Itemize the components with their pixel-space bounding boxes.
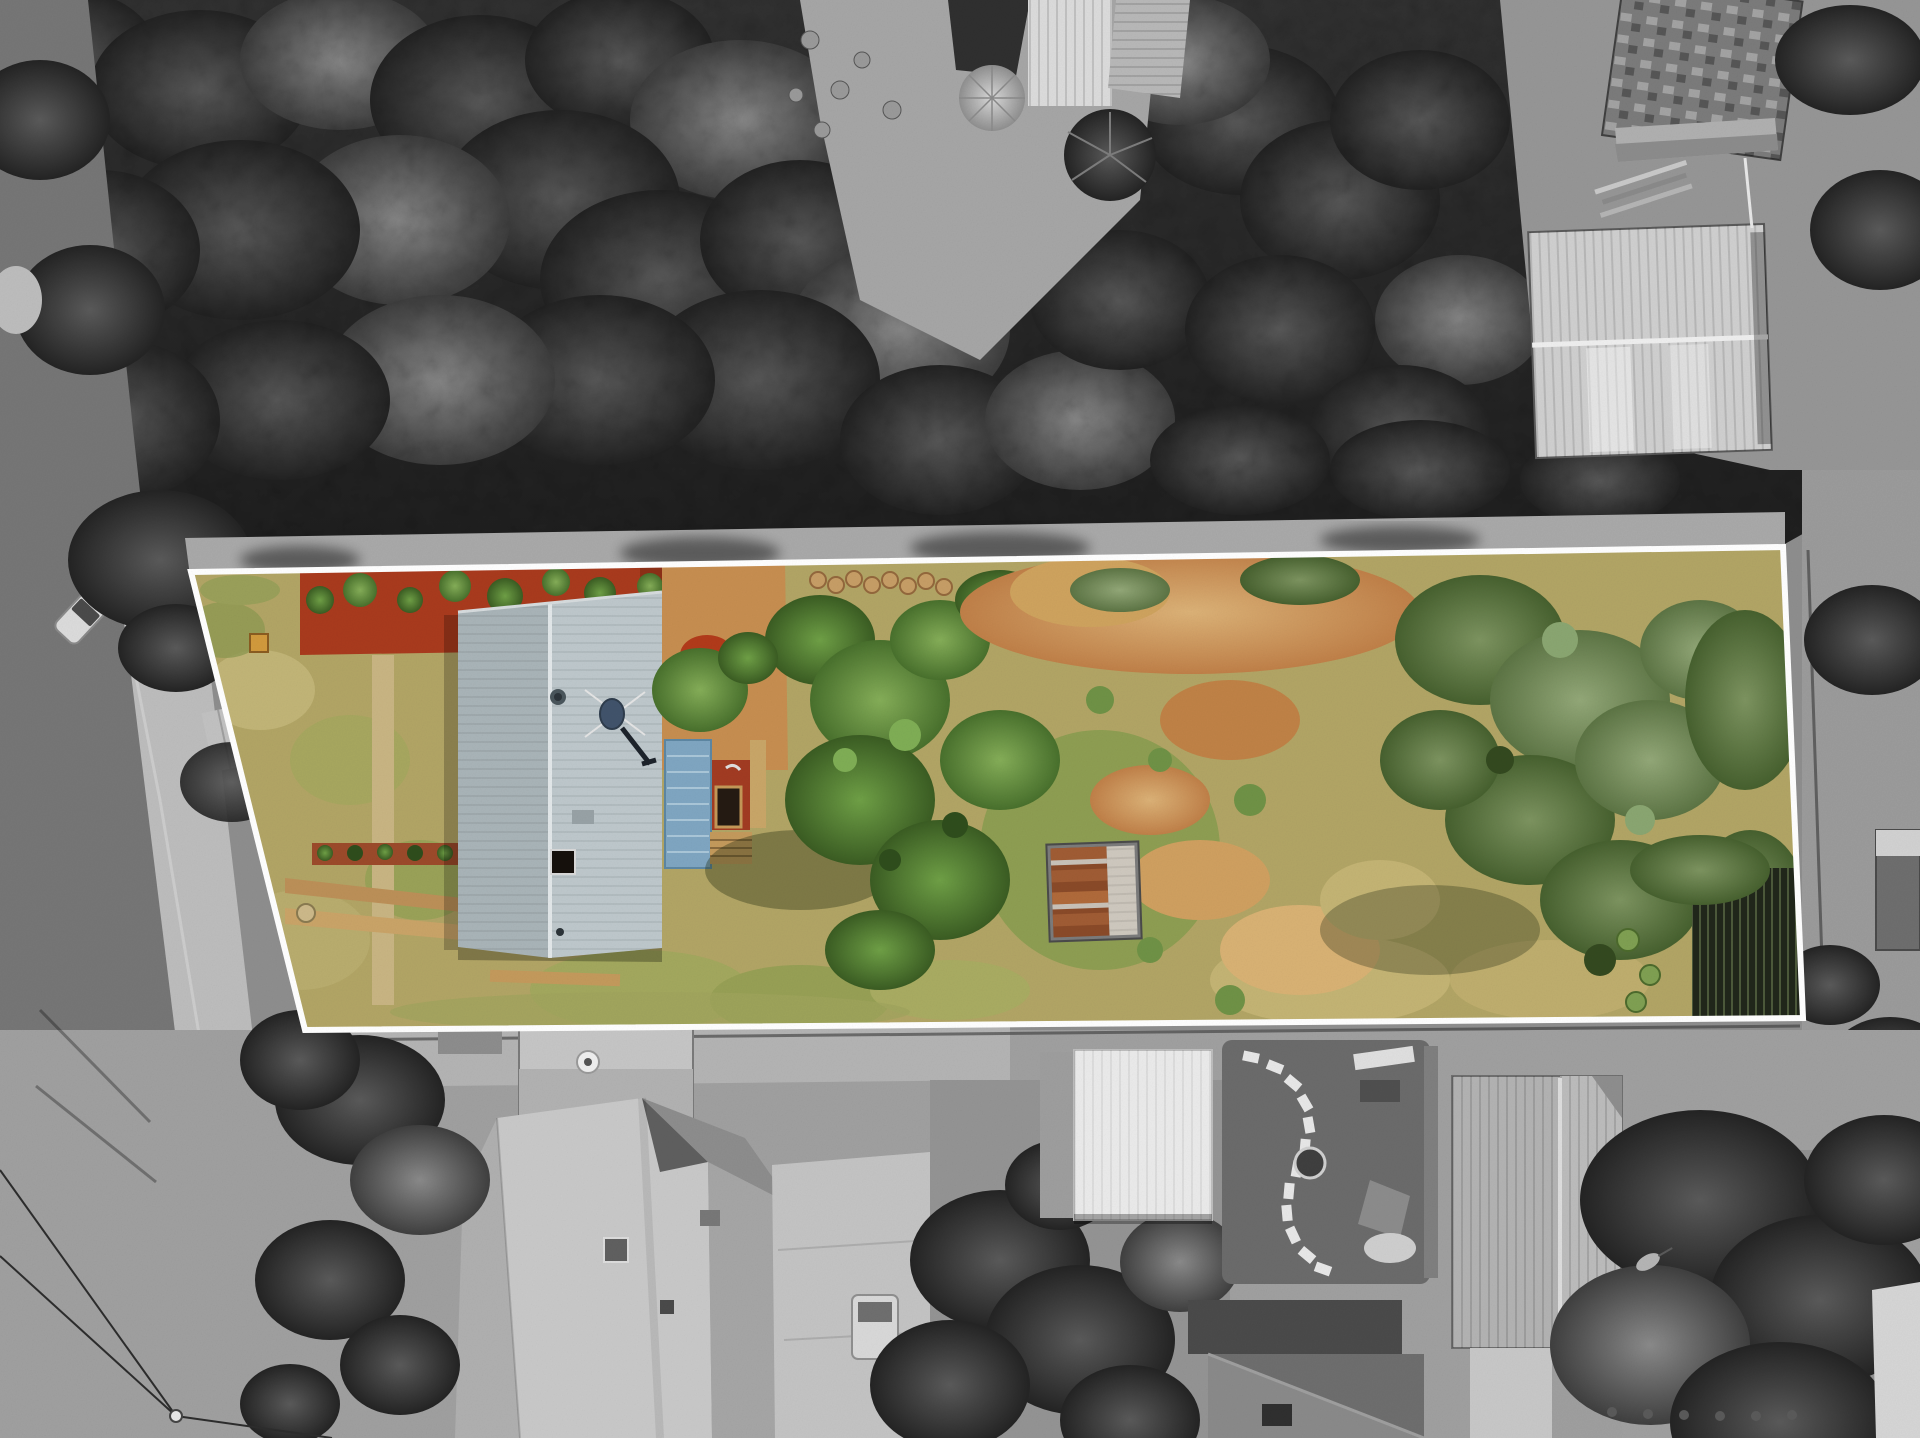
- aerial-photo: [0, 0, 1920, 1438]
- film-grain: [0, 0, 1920, 1438]
- aerial-photo-canvas: [0, 0, 1920, 1438]
